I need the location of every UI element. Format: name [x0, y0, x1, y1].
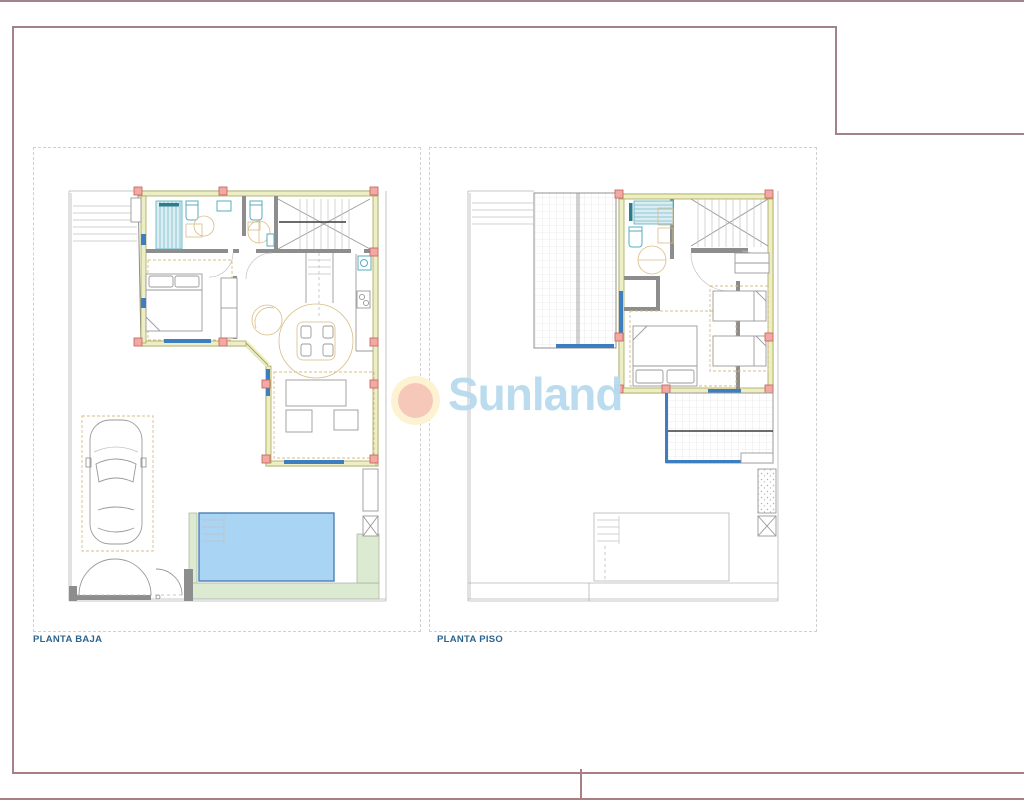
sunland-wordmark: Sunland: [448, 367, 622, 421]
towel-rail-icon: [159, 203, 179, 207]
frame-step-horizontal: [835, 133, 1024, 135]
frame-left: [12, 26, 14, 772]
planta-baja-drawing: [34, 148, 420, 631]
sheet-top-edge: [0, 0, 1024, 2]
porch-column: [131, 198, 141, 222]
garage-car: [82, 416, 153, 551]
driveway-ramp: [73, 206, 137, 241]
drawing-sheet: PLANTA BAJA PLANTA PISO Sunland: [0, 0, 1024, 800]
balcony: [665, 393, 773, 463]
sunland-logo-inner-circle: [398, 383, 433, 418]
roof-terrace: [534, 193, 616, 348]
planta-piso-label: PLANTA PISO: [437, 634, 503, 645]
frame-step-vertical: [835, 26, 837, 134]
panel-planta-baja: [33, 147, 421, 632]
side-strip: [758, 469, 776, 536]
titleblock-divider: [580, 769, 582, 800]
driveway-ramp: [472, 203, 533, 224]
frame-top: [12, 26, 837, 28]
towel-rail-icon: [629, 203, 633, 221]
walkway: [363, 469, 378, 511]
frame-bottom: [12, 772, 1024, 774]
pool: [199, 513, 334, 581]
pool-outline: [594, 513, 729, 581]
planta-baja-label: PLANTA BAJA: [33, 634, 102, 645]
